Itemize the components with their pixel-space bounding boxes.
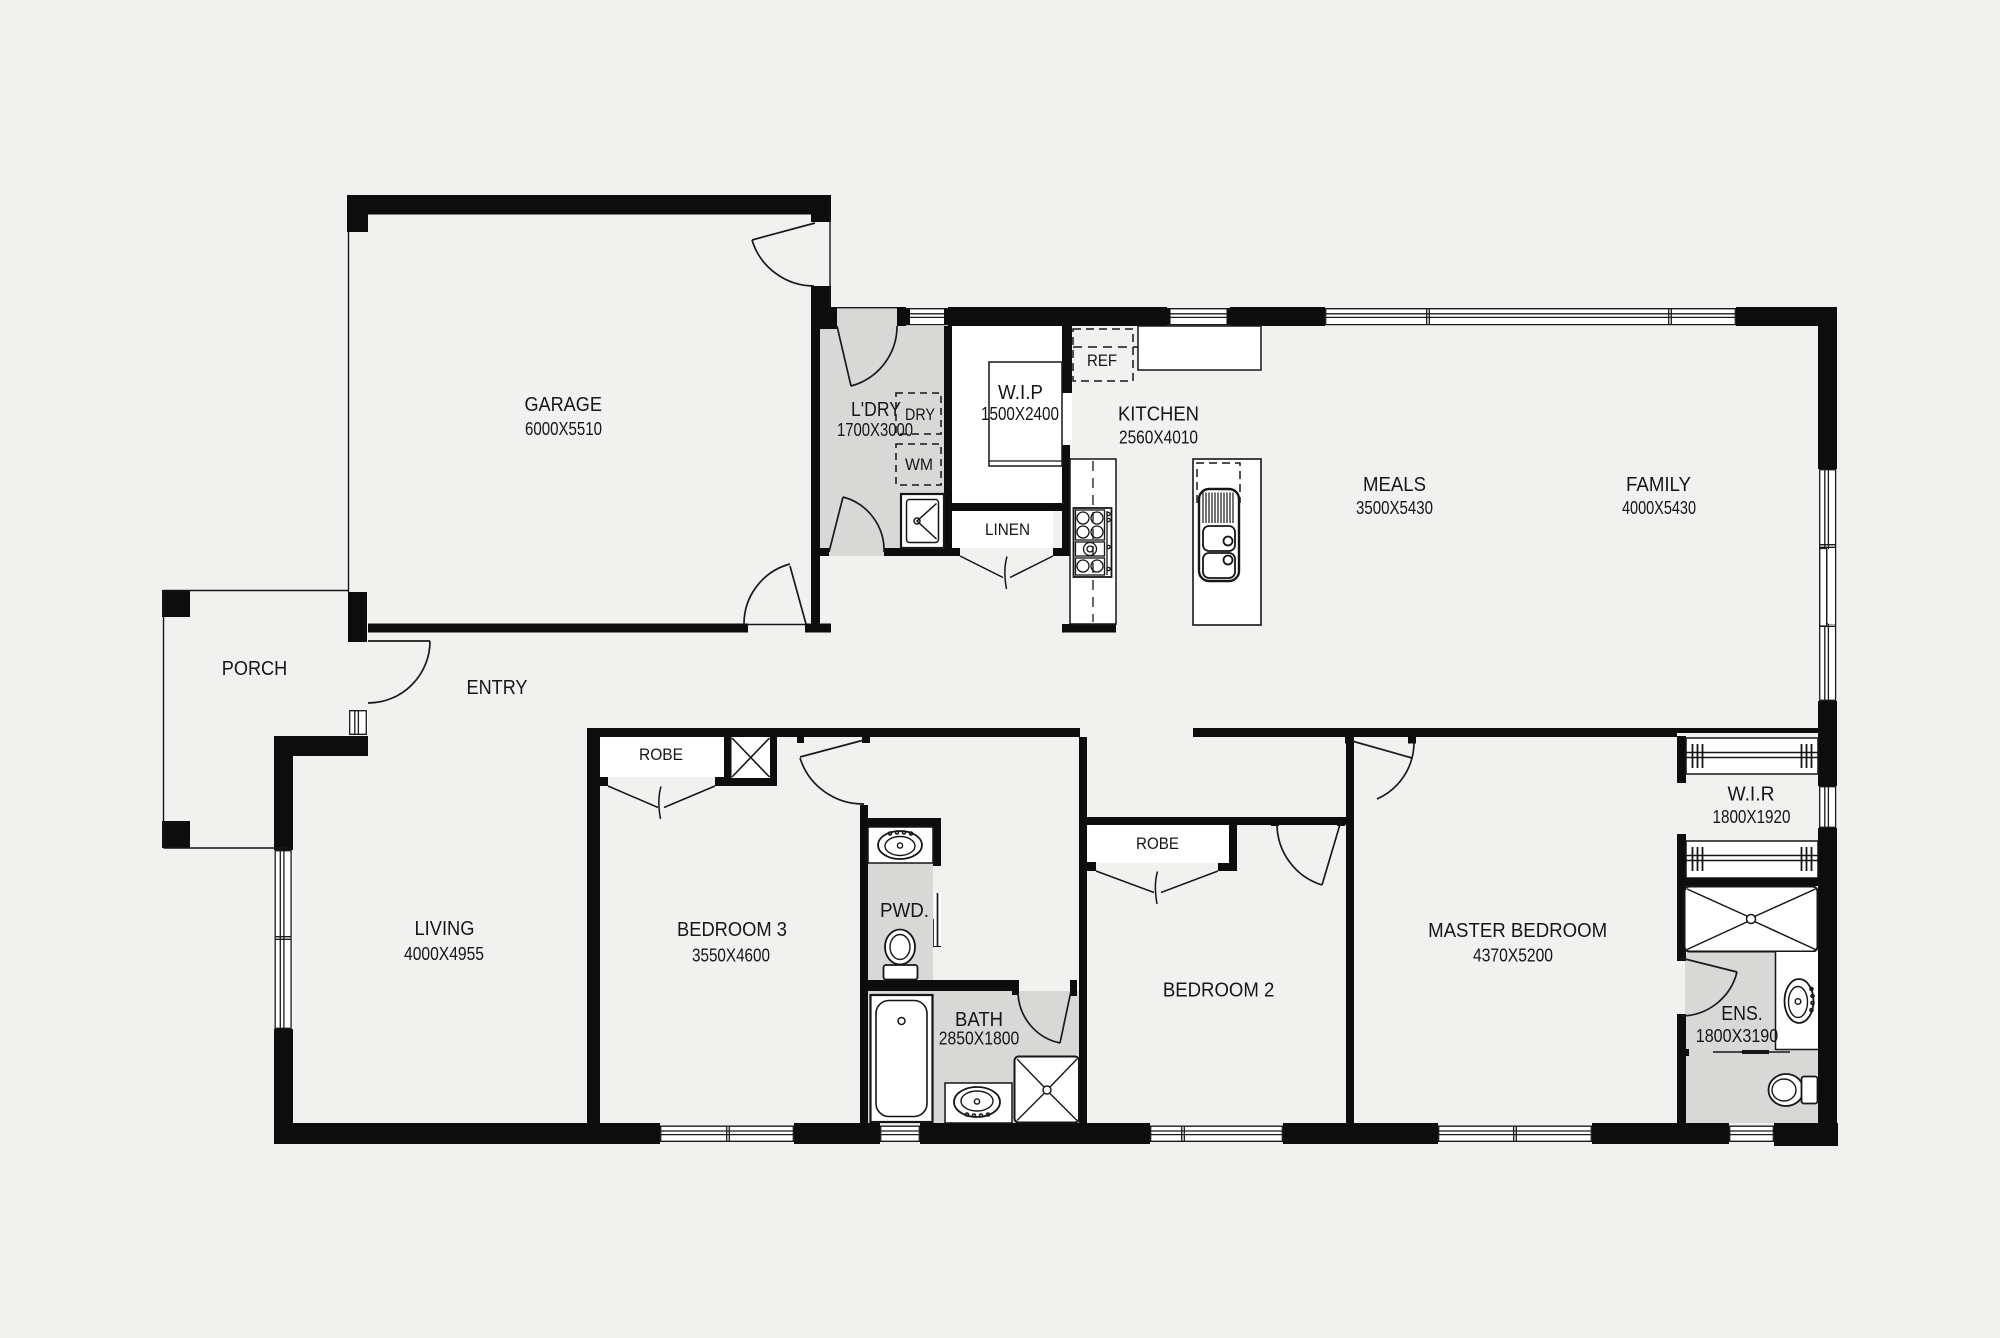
svg-text:6000X5510: 6000X5510: [525, 419, 602, 439]
svg-text:2850X1800: 2850X1800: [939, 1029, 1020, 1049]
svg-text:PWD.: PWD.: [880, 899, 929, 922]
svg-text:2560X4010: 2560X4010: [1119, 428, 1198, 448]
svg-text:FAMILY: FAMILY: [1626, 473, 1691, 496]
svg-text:ENS.: ENS.: [1721, 1002, 1763, 1025]
svg-text:LINEN: LINEN: [985, 521, 1030, 539]
svg-text:3500X5430: 3500X5430: [1356, 498, 1433, 518]
svg-text:L'DRY: L'DRY: [851, 398, 901, 421]
svg-text:1800X3190: 1800X3190: [1696, 1026, 1779, 1046]
svg-text:PORCH: PORCH: [222, 657, 288, 680]
svg-text:DRY: DRY: [905, 406, 935, 424]
svg-text:4370X5200: 4370X5200: [1473, 946, 1553, 966]
svg-text:3550X4600: 3550X4600: [692, 946, 770, 966]
svg-text:KITCHEN: KITCHEN: [1118, 403, 1199, 426]
svg-text:1800X1920: 1800X1920: [1713, 807, 1791, 827]
svg-text:REF: REF: [1087, 352, 1117, 370]
svg-text:W.I.P: W.I.P: [998, 381, 1043, 404]
svg-text:ENTRY: ENTRY: [467, 676, 528, 699]
svg-text:GARAGE: GARAGE: [524, 393, 602, 416]
svg-text:ROBE: ROBE: [639, 746, 683, 764]
svg-text:MEALS: MEALS: [1363, 473, 1426, 496]
svg-text:WM: WM: [905, 456, 933, 474]
svg-text:1500X2400: 1500X2400: [981, 404, 1059, 424]
svg-text:4000X4955: 4000X4955: [404, 944, 484, 964]
svg-text:BEDROOM 3: BEDROOM 3: [677, 918, 787, 941]
svg-text:LIVING: LIVING: [415, 917, 475, 940]
svg-text:ROBE: ROBE: [1136, 835, 1179, 853]
svg-text:MASTER BEDROOM: MASTER BEDROOM: [1428, 919, 1607, 942]
svg-text:4000X5430: 4000X5430: [1622, 498, 1696, 518]
svg-text:BEDROOM 2: BEDROOM 2: [1163, 979, 1275, 1002]
svg-text:1700X3000: 1700X3000: [837, 420, 913, 440]
svg-text:W.I.R: W.I.R: [1728, 783, 1775, 806]
